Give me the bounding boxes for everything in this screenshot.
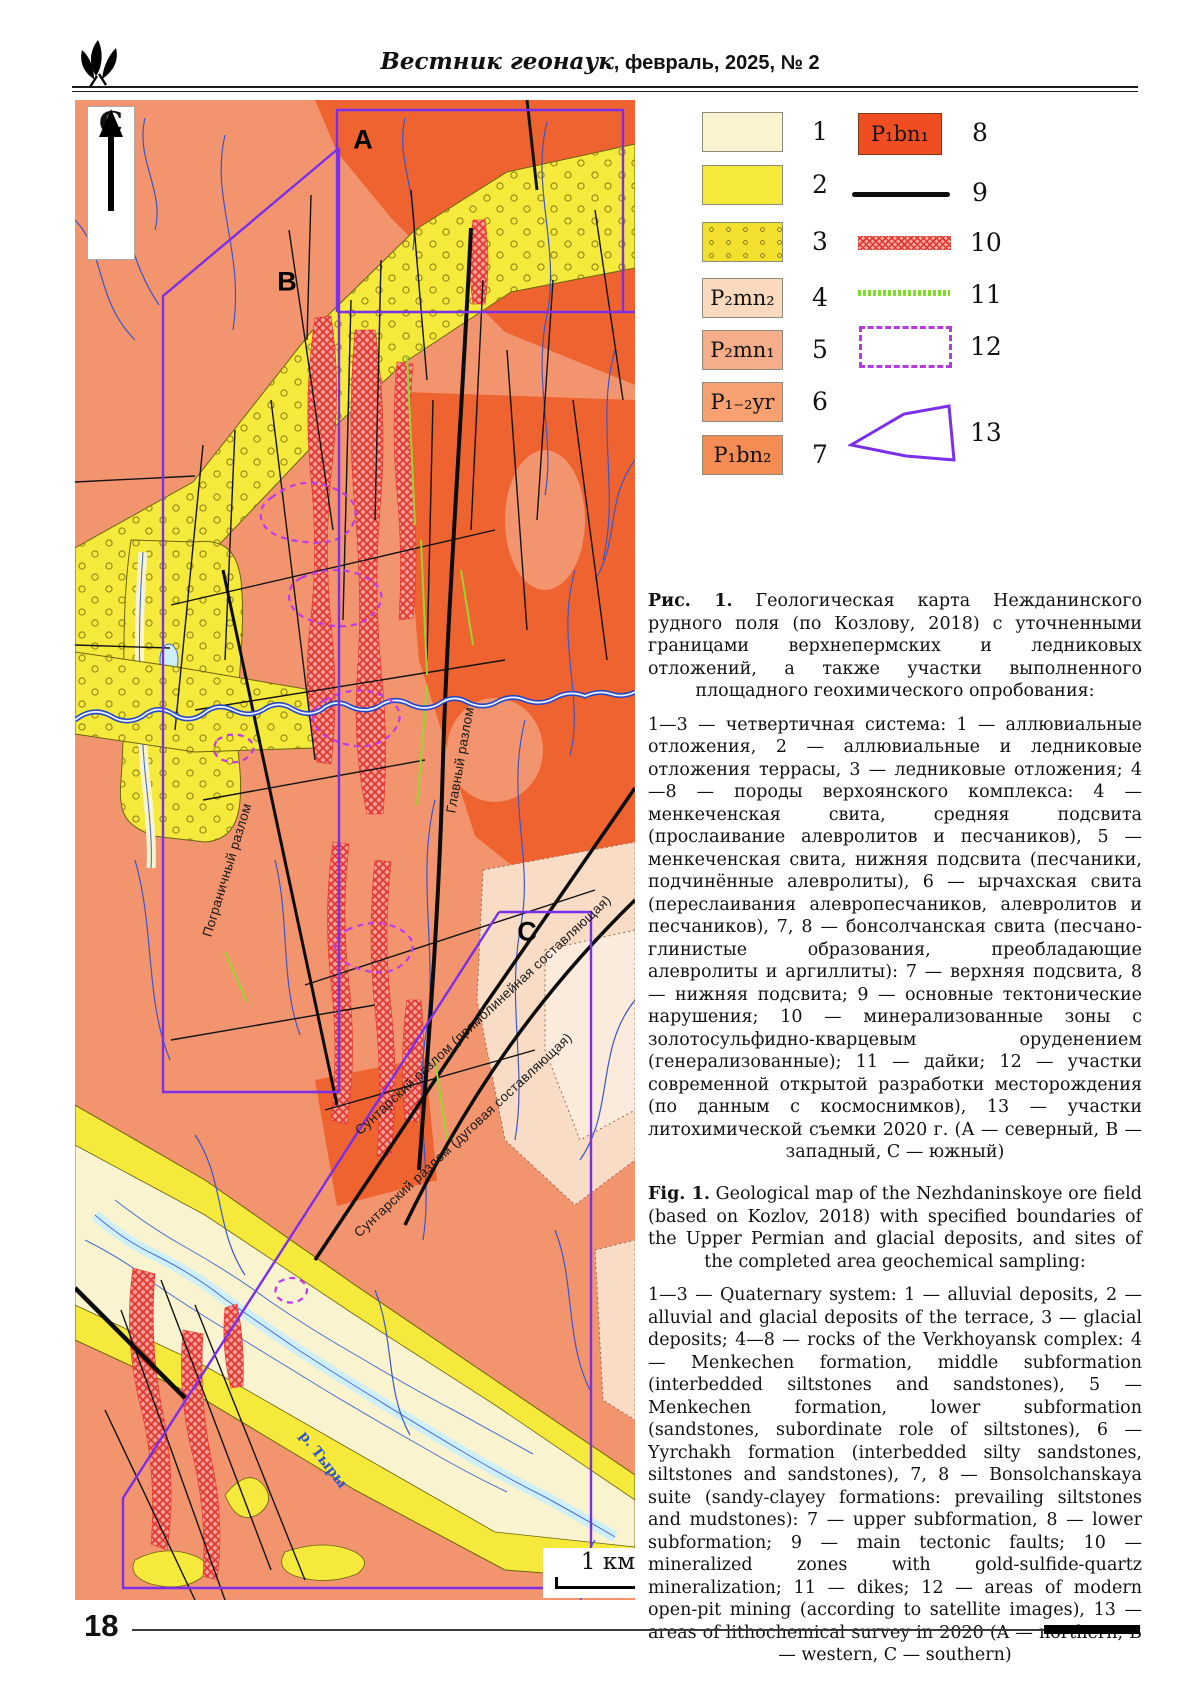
journal-issue: , февраль, 2025, № 2	[614, 52, 820, 74]
legend-swatch-p1bn1: P₁bn₁	[858, 113, 942, 155]
legend-number-12: 12	[970, 332, 1002, 361]
legend-fault-line	[852, 192, 950, 197]
map-legend: 1 2 3 P₂mn₂ 4 P₂mn₁ 5 P₁₋₂yr 6 P₁bn₂ 7 P…	[640, 100, 1140, 580]
legend-number-13: 13	[970, 418, 1002, 447]
page-number: 18	[84, 1608, 118, 1644]
legend-swatch-p2mn1: P₂mn₁	[702, 330, 783, 370]
legend-unit-label: P₁₋₂yr	[711, 390, 775, 414]
legend-dike-line	[858, 290, 950, 296]
north-indicator: С	[87, 106, 135, 260]
legend-mining-area-box	[859, 326, 952, 368]
legend-number-7: 7	[812, 440, 828, 469]
legend-number-6: 6	[812, 387, 828, 416]
area-label-b: B	[277, 267, 297, 298]
north-arrow-icon	[88, 107, 134, 219]
map-artwork	[75, 100, 635, 1600]
legend-number-1: 1	[812, 117, 828, 146]
legend-unit-label: P₂mn₁	[710, 338, 774, 362]
figure-label-ru: Рис. 1.	[648, 591, 733, 611]
legend-swatch-p1bn2: P₁bn₂	[702, 435, 783, 475]
geological-map: С A B С Пограничный разлом Главный разло…	[75, 100, 635, 1600]
legend-swatch-glacial	[702, 222, 783, 262]
header-rule	[72, 86, 1138, 92]
journal-title: Вестник геонаук, февраль, 2025, № 2	[0, 48, 1200, 75]
legend-survey-polygon	[848, 403, 960, 465]
legend-number-9: 9	[972, 178, 988, 207]
journal-page: Вестник геонаук, февраль, 2025, № 2	[0, 0, 1200, 1698]
figure-label-en: Fig. 1.	[648, 1184, 710, 1204]
area-label-c: С	[517, 917, 537, 948]
legend-swatch-p2mn2: P₂mn₂	[702, 278, 783, 318]
caption-russian: Рис. 1. Геологическая карта Нежданинског…	[648, 590, 1142, 1175]
legend-number-11: 11	[970, 280, 1002, 309]
scale-label: 1 км	[543, 1548, 635, 1576]
caption-en-title-text: Geological map of the Nezhdaninskoye ore…	[648, 1184, 1142, 1272]
caption-english: Fig. 1. Geological map of the Nezhdanins…	[648, 1183, 1142, 1678]
legend-swatch-alluvial-glacial	[702, 165, 783, 205]
footer-rule	[132, 1629, 1140, 1631]
legend-number-3: 3	[812, 227, 828, 256]
footer-rule-end	[1044, 1625, 1140, 1634]
caption-en-title: Fig. 1. Geological map of the Nezhdanins…	[648, 1183, 1142, 1273]
area-label-a: A	[353, 125, 373, 156]
caption-en-body: 1—3 — Quaternary system: 1 — alluvial de…	[648, 1284, 1142, 1667]
scale-bar: 1 км	[543, 1548, 635, 1598]
legend-swatch-alluvial	[702, 112, 783, 152]
caption-ru-title: Рис. 1. Геологическая карта Нежданинског…	[648, 590, 1142, 703]
scale-bracket	[555, 1577, 635, 1589]
legend-unit-label: P₁bn₂	[714, 443, 772, 467]
legend-unit-label: P₁bn₁	[871, 122, 929, 146]
legend-swatch-p12yr: P₁₋₂yr	[702, 382, 783, 422]
legend-number-4: 4	[812, 283, 828, 312]
legend-number-10: 10	[970, 228, 1002, 257]
legend-number-5: 5	[812, 335, 828, 364]
legend-unit-label: P₂mn₂	[710, 286, 774, 310]
legend-number-2: 2	[812, 170, 828, 199]
legend-mineralized-band	[858, 236, 951, 250]
legend-number-8: 8	[972, 118, 988, 147]
caption-ru-body: 1—3 — четвертичная система: 1 — аллювиал…	[648, 714, 1142, 1164]
journal-name: Вестник геонаук	[380, 48, 613, 75]
